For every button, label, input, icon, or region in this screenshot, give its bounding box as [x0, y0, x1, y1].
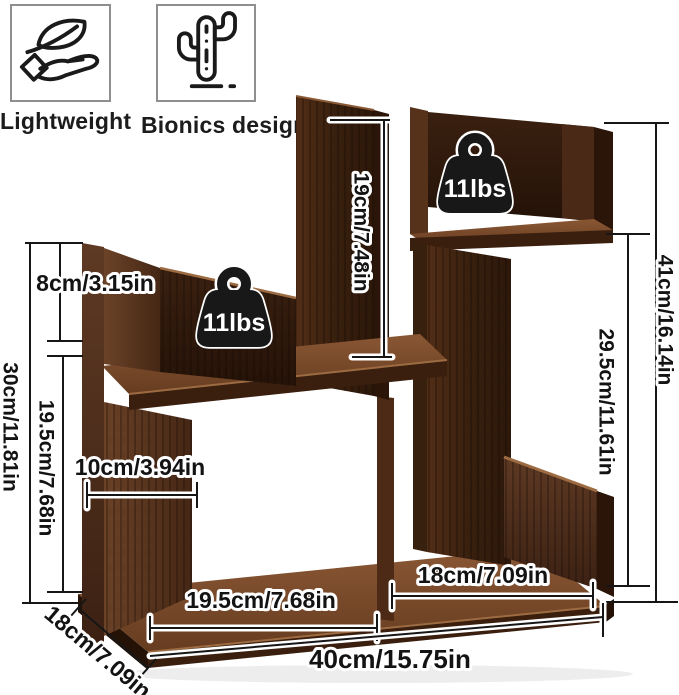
dim-label: 30cm/11.81in — [0, 362, 22, 492]
shelf-right-panel — [413, 243, 511, 566]
dim-label: 19cm/7.48in — [350, 172, 373, 291]
dim-label: 40cm/15.75in — [309, 644, 471, 674]
dim-label: 41cm/16.14in — [654, 255, 677, 386]
dim-label: 10cm/3.94in — [75, 454, 205, 480]
dim-label: 19.5cm/7.68in — [186, 587, 336, 613]
dim-label: 19.5cm/7.68in — [35, 400, 58, 537]
dim-label: 29.5cm/11.61in — [595, 328, 618, 475]
dim-label: 18cm/7.09in — [418, 562, 548, 588]
shelf-top-right-box — [410, 107, 613, 251]
weight-badge-label: 11lbs — [203, 309, 266, 337]
product-dimension-diagram: Lightweight Bionics design — [0, 0, 679, 695]
shelf-diagram: 11lbs 11lbs 8cm/3.15in 30cm/11.81in 19.5… — [0, 0, 679, 695]
dim-label: 8cm/3.15in — [36, 270, 154, 296]
weight-badge-label: 11lbs — [444, 175, 507, 203]
